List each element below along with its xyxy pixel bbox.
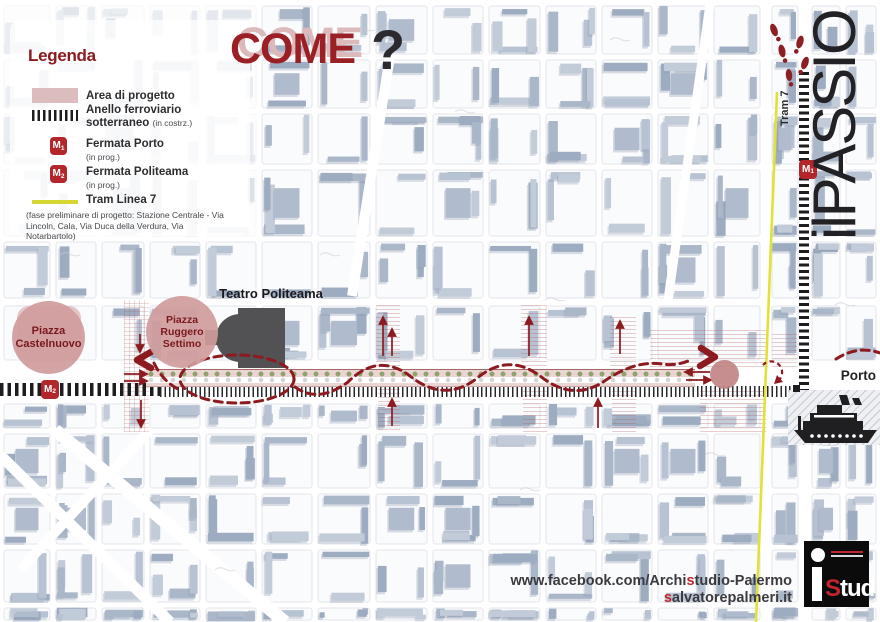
poster-title: COME ? (230, 26, 405, 74)
logo-wordmark: Stud (825, 575, 874, 603)
piazza-castelnuovo-label: Piazza Castelnuovo (12, 301, 85, 374)
tram-line-7 (756, 92, 777, 622)
legend-panel: Legenda Area di progetto Anello ferrovia… (10, 20, 250, 236)
legend-item-area: Area di progetto (86, 90, 175, 102)
legend-m2-badge: M2 (50, 165, 67, 183)
legend-item-m1: Fermata Porto (in prog.) (86, 138, 164, 164)
legend-title: Legenda (28, 46, 96, 66)
logo-dot (811, 548, 825, 562)
istud-studio-logo: Stud (804, 541, 869, 607)
logo-i-stem (812, 567, 822, 601)
rail-dashes-swatch (32, 110, 78, 121)
footer-credits: www.facebook.com/Archistudio-Palermo sal… (511, 573, 792, 606)
poster-canvas: M2 M1 Piazza Castelnuovo Piazza Ruggero … (0, 0, 880, 622)
legend-item-anello: Anello ferroviario sotterraneo (in costr… (86, 104, 198, 130)
piazza-ruggero-settimo-label: Piazza Ruggero Settimo (146, 296, 218, 368)
tram-line-swatch (32, 200, 78, 204)
legend-m1-badge: M1 (50, 137, 67, 155)
title-question-mark: ? (371, 26, 405, 74)
route-loop-arrowhead (774, 375, 783, 384)
area-swatch (32, 88, 78, 103)
logo-decor-line (831, 551, 863, 553)
title-come: COME (230, 26, 355, 72)
legend-item-m2: Fermata Politeama (in prog.) (86, 166, 188, 192)
logo-decor-line (831, 555, 863, 557)
tram-7-label: Tram 7 (779, 80, 791, 126)
legend-tram-note: (fase preliminare di progetto: Stazione … (26, 210, 232, 242)
rail-corner-node (793, 385, 800, 392)
porto-label: Porto (818, 368, 876, 383)
legend-item-tram: Tram Linea 7 (86, 194, 156, 206)
teatro-politeama-label: Teatro Politeama (205, 286, 337, 301)
project-logo-ilpassio: ilPASSIO (800, 12, 880, 240)
website-link[interactable]: salvatorepalmeri.it (511, 590, 792, 607)
route-dashed-line (154, 350, 880, 403)
route-end-node (710, 360, 739, 389)
metro-stop-m2-badge: M2 (41, 380, 59, 399)
facebook-link[interactable]: www.facebook.com/Archistudio-Palermo (511, 573, 792, 590)
